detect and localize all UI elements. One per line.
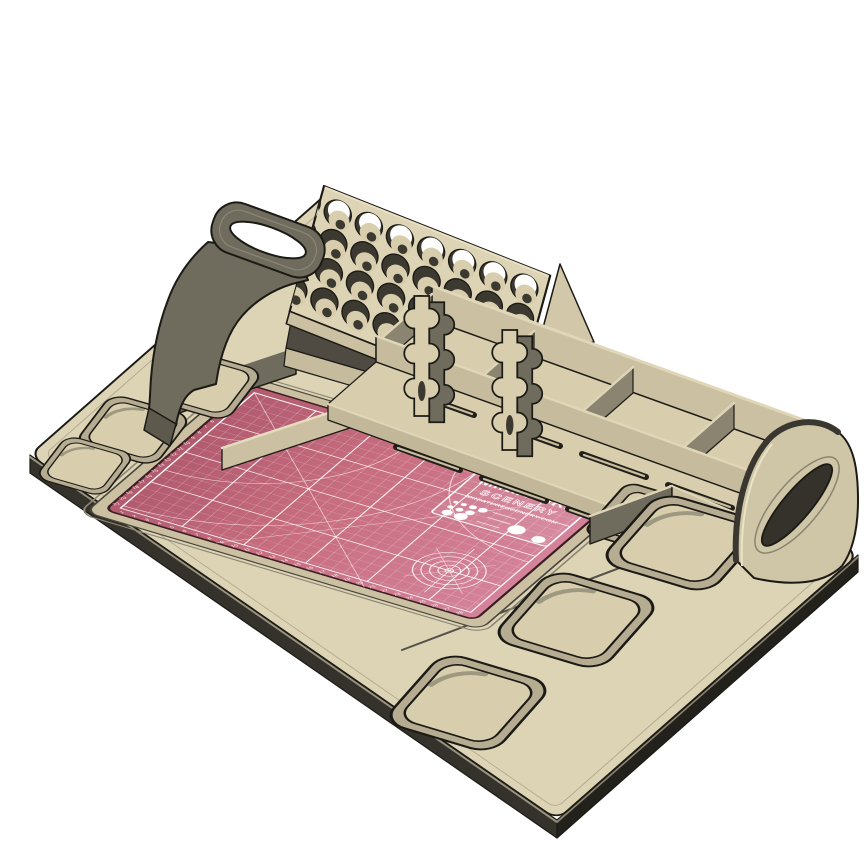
workstation-render: MINIATURESCENERYMINIATURESCENERY.COM1234…: [0, 0, 867, 842]
scene-svg: MINIATURESCENERYMINIATURESCENERY.COM1234…: [0, 0, 867, 842]
